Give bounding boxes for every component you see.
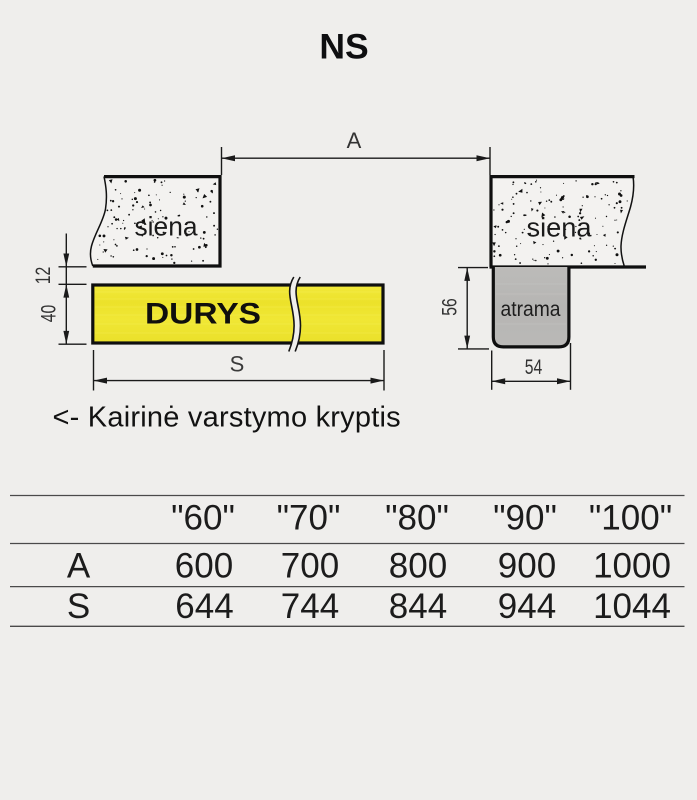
svg-text:800: 800 <box>389 547 447 586</box>
svg-text:DURYS: DURYS <box>145 298 261 331</box>
svg-text:1000: 1000 <box>593 547 671 586</box>
svg-text:900: 900 <box>498 547 556 586</box>
svg-text:944: 944 <box>498 587 556 626</box>
svg-text:NS: NS <box>319 27 368 67</box>
svg-text:S: S <box>67 587 90 626</box>
svg-text:744: 744 <box>281 587 339 626</box>
svg-text:1044: 1044 <box>593 587 671 626</box>
svg-text:siena: siena <box>135 212 199 242</box>
svg-text:A: A <box>347 128 362 153</box>
svg-text:A: A <box>67 547 91 586</box>
svg-text:"100": "100" <box>589 499 672 538</box>
svg-text:"90": "90" <box>493 499 557 538</box>
svg-text:700: 700 <box>281 547 339 586</box>
svg-text:siena: siena <box>527 213 593 243</box>
svg-text:40: 40 <box>38 305 61 323</box>
svg-text:<- Kairinė varstymo kryptis: <- Kairinė varstymo kryptis <box>53 402 401 434</box>
svg-text:atrama: atrama <box>501 298 561 321</box>
svg-text:"80": "80" <box>385 499 449 538</box>
svg-text:600: 600 <box>175 547 233 586</box>
svg-text:12: 12 <box>32 267 55 285</box>
svg-text:56: 56 <box>439 298 462 316</box>
svg-text:"60": "60" <box>171 499 235 538</box>
svg-text:644: 644 <box>175 587 233 626</box>
svg-text:S: S <box>230 352 245 377</box>
svg-text:844: 844 <box>389 587 447 626</box>
svg-text:54: 54 <box>525 356 543 379</box>
svg-text:"70": "70" <box>277 499 341 538</box>
